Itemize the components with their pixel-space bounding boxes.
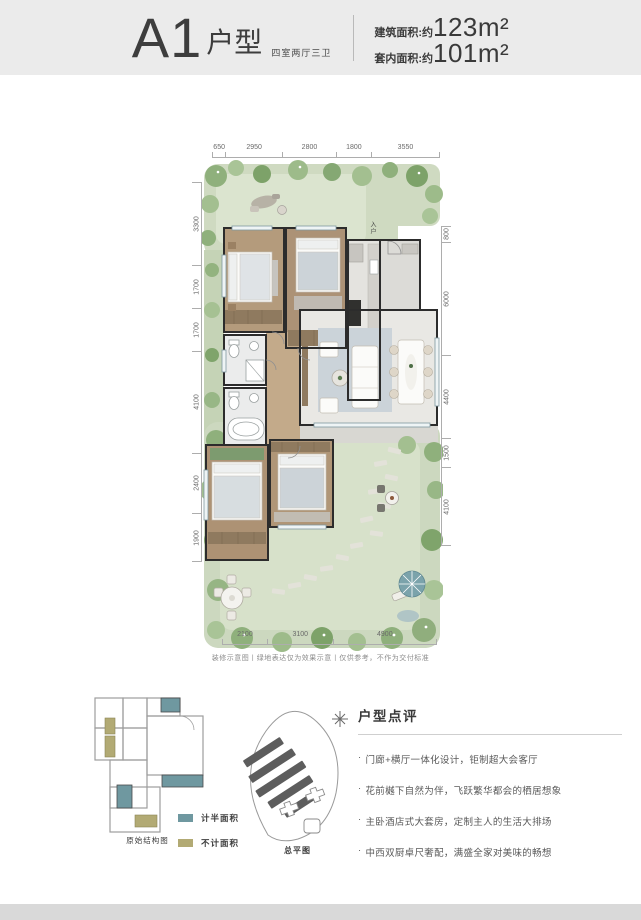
header-divider <box>353 15 354 61</box>
structure-uncounted-areas <box>105 718 157 827</box>
dim-label: 4400 <box>443 389 450 405</box>
unit-title-main: A1 <box>132 12 203 64</box>
dims-bottom: 2100 3100 4900 <box>222 631 437 645</box>
dim-label: 6000 <box>443 291 450 307</box>
unit-review: 户型点评 · 门廊+横厅一体化设计，钜制超大会客厅 · 花前樾下自然为伴，飞跃繁… <box>358 705 622 859</box>
legend-row-counted-half: 计半面积 <box>178 812 239 824</box>
dim-label: 2100 <box>237 631 253 638</box>
interior-area-value: 101m² <box>433 38 509 69</box>
review-title: 户型点评 <box>358 705 622 725</box>
review-bullet: · 花前樾下自然为伴，飞跃繁华都会的栖居想象 <box>358 783 622 797</box>
unit-title: A1 户型 四室两厅三卫 <box>132 12 332 64</box>
construction-area-row: 建筑面积:约 123m² <box>374 12 509 38</box>
review-bullet-text: 主卧酒店式大套房，定制主人的生活大排场 <box>365 814 551 828</box>
legend-row-uncounted: 不计面积 <box>178 837 239 849</box>
area-legend: 计半面积 不计面积 <box>178 812 239 849</box>
area-info: 建筑面积:约 123m² 套内面积:约 101m² <box>374 12 509 64</box>
dim-label: 3100 <box>292 631 308 638</box>
review-bullet-text: 花前樾下自然为伴，飞跃繁华都会的栖居想象 <box>365 783 561 797</box>
floorplan-drawing <box>202 160 443 652</box>
bullet-marker: · <box>358 752 361 766</box>
header-band: A1 户型 四室两厅三卫 建筑面积:约 123m² 套内面积:约 101m² <box>0 0 641 75</box>
dim-label: 4100 <box>193 394 200 410</box>
dim-label: 2800 <box>302 144 318 151</box>
bullet-marker: · <box>358 814 361 828</box>
legend-label: 不计面积 <box>201 837 239 849</box>
dim-label: 2950 <box>246 144 262 151</box>
review-bullet: · 主卧酒店式大套房，定制主人的生活大排场 <box>358 814 622 828</box>
interior-area-label: 套内面积:约 <box>374 50 433 66</box>
unit-subtitle: 四室两厅三卫 <box>271 46 331 59</box>
site-plan-drawing <box>240 707 355 845</box>
dim-label: 1700 <box>193 279 200 295</box>
dim-label: 2400 <box>193 476 200 492</box>
dim-label: 650 <box>213 144 225 151</box>
dim-label: 800 <box>443 229 450 241</box>
dims-left: 3300 1700 1700 4100 2400 1900 <box>192 182 202 562</box>
dim-label: 1900 <box>193 530 200 546</box>
dims-top: 650 2950 2800 1800 3550 <box>212 144 440 158</box>
dim-label: 4100 <box>443 499 450 515</box>
review-bullet: · 中西双厨卓尺奢配，满盛全家对美味的畅想 <box>358 845 622 859</box>
dim-label: 3550 <box>398 144 414 151</box>
review-divider <box>358 734 622 735</box>
floorplan-poster: A1 户型 四室两厅三卫 建筑面积:约 123m² 套内面积:约 101m² <box>0 0 641 920</box>
interior-area-row: 套内面积:约 101m² <box>374 38 509 64</box>
bullet-marker: · <box>358 783 361 797</box>
bullet-marker: · <box>358 845 361 859</box>
dim-label: 1800 <box>346 144 362 151</box>
unit-title-suffix: 户型 <box>206 21 262 61</box>
dim-label: 3300 <box>193 216 200 232</box>
dim-label: 1700 <box>193 322 200 338</box>
entry-label: 入户 <box>368 221 377 235</box>
footer-band <box>0 904 641 920</box>
dim-label: 1500 <box>443 446 450 462</box>
review-bullet: · 门廊+横厅一体化设计，钜制超大会客厅 <box>358 752 622 766</box>
review-bullet-list: · 门廊+横厅一体化设计，钜制超大会客厅 · 花前樾下自然为伴，飞跃繁华都会的栖… <box>358 752 622 859</box>
pond <box>397 610 419 622</box>
compass-icon <box>332 711 348 727</box>
review-bullet-text: 门廊+横厅一体化设计，钜制超大会客厅 <box>365 752 537 766</box>
bedroom3-furniture <box>270 442 330 522</box>
disclaimer-text: 装修示意图丨绿地表达仅为效果示意丨仅供参考，不作为交付标准 <box>0 653 641 663</box>
legend-label: 计半面积 <box>201 812 239 824</box>
dims-right: 800 6000 4400 1500 4100 <box>441 226 451 546</box>
review-bullet-text: 中西双厨卓尺奢配，满盛全家对美味的畅想 <box>365 845 551 859</box>
teal-swatch-icon <box>178 814 193 822</box>
olive-swatch-icon <box>178 839 193 847</box>
site-plan-caption: 总平图 <box>240 845 355 856</box>
dim-label: 4900 <box>377 631 393 638</box>
